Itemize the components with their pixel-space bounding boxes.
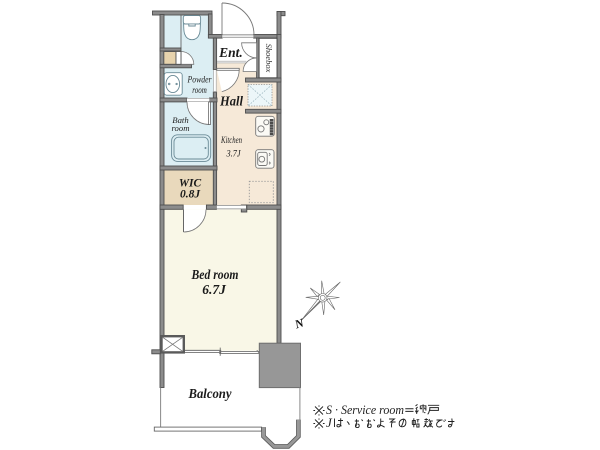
svg-text:Kitchen: Kitchen [220, 136, 242, 146]
svg-text:Shoebox: Shoebox [264, 44, 274, 73]
svg-text:S · Service room: S · Service room [326, 402, 404, 417]
svg-text:room: room [171, 123, 189, 133]
svg-text:3.7J: 3.7J [226, 150, 242, 160]
svg-text:Ent.: Ent. [218, 45, 243, 60]
svg-text:6.7J: 6.7J [202, 282, 227, 297]
svg-text:Bed room: Bed room [191, 267, 239, 282]
svg-text:room: room [192, 86, 207, 96]
svg-text:Powder: Powder [187, 76, 212, 86]
svg-text:Balcony: Balcony [188, 387, 233, 402]
svg-text:0.8J: 0.8J [180, 188, 201, 200]
svg-text:Hall: Hall [219, 95, 243, 110]
